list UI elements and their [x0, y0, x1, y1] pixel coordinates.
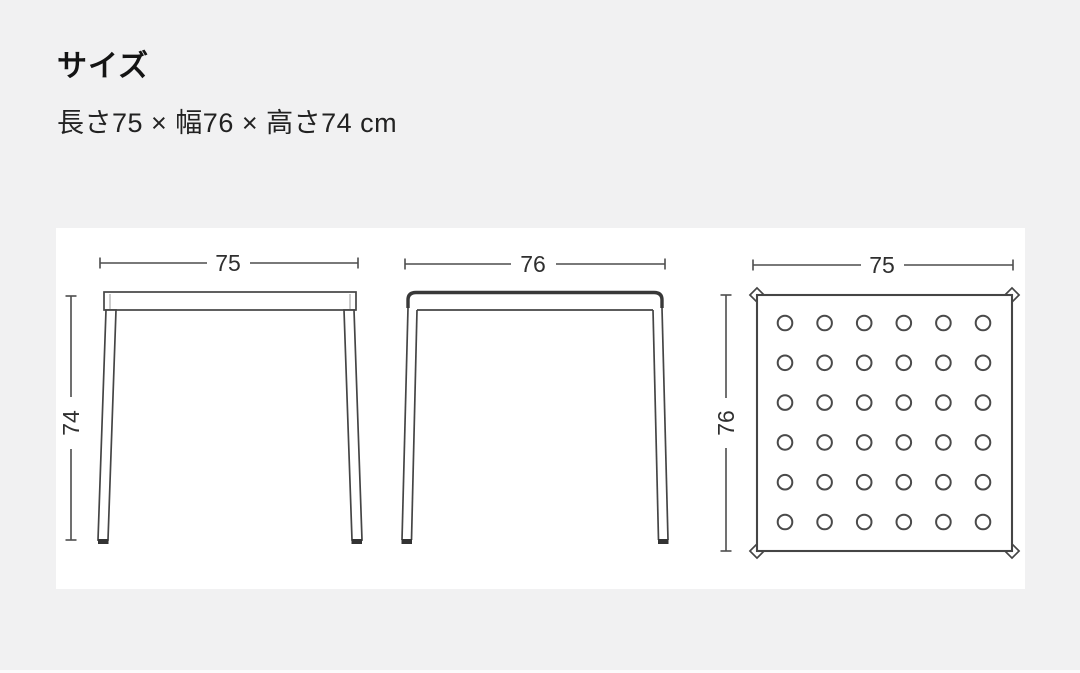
hole — [857, 515, 872, 530]
dimension-diagram: 75 74 — [56, 228, 1025, 589]
hole — [857, 395, 872, 410]
hole — [817, 395, 832, 410]
top-table-drawing — [750, 288, 1019, 558]
hole — [778, 316, 793, 331]
hole — [817, 475, 832, 490]
hole — [897, 475, 912, 490]
hole — [976, 475, 991, 490]
front-table-drawing — [98, 292, 362, 544]
product-size-section: サイズ 長さ75 × 幅76 × 高さ74 cm 75 — [0, 0, 1080, 673]
hole — [778, 435, 793, 450]
top-width-dimension: 75 — [753, 252, 1013, 278]
hole — [857, 435, 872, 450]
hole — [817, 316, 832, 331]
hole — [897, 316, 912, 331]
hole — [897, 395, 912, 410]
top-view: 75 76 — [713, 252, 1019, 558]
hole — [817, 356, 832, 371]
hole — [936, 356, 951, 371]
size-dimensions-text: 長さ75 × 幅76 × 高さ74 cm — [57, 101, 397, 140]
hole — [857, 475, 872, 490]
side-width-label: 76 — [520, 251, 546, 277]
side-table-drawing — [402, 293, 669, 545]
hole — [778, 475, 793, 490]
hole — [817, 515, 832, 530]
hole — [857, 356, 872, 371]
side-view: 76 — [402, 251, 669, 544]
hole — [936, 395, 951, 410]
front-height-dimension: 74 — [58, 296, 84, 540]
hole — [897, 356, 912, 371]
front-width-label: 75 — [215, 250, 241, 276]
front-width-dimension: 75 — [100, 250, 358, 276]
top-depth-label: 76 — [713, 410, 739, 436]
page-title: サイズ — [57, 41, 149, 85]
hole — [936, 435, 951, 450]
hole — [976, 316, 991, 331]
hole — [817, 435, 832, 450]
front-view: 75 74 — [58, 250, 362, 544]
hole — [936, 475, 951, 490]
front-height-label: 74 — [58, 410, 84, 436]
hole — [976, 356, 991, 371]
hole — [897, 435, 912, 450]
hole — [976, 435, 991, 450]
top-width-label: 75 — [869, 252, 895, 278]
hole — [778, 515, 793, 530]
dimension-diagram-panel: 75 74 — [56, 228, 1025, 589]
hole — [976, 395, 991, 410]
hole — [936, 316, 951, 331]
hole — [936, 515, 951, 530]
top-depth-dimension: 76 — [713, 295, 739, 551]
hole — [778, 395, 793, 410]
hole — [976, 515, 991, 530]
hole — [778, 356, 793, 371]
hole — [897, 515, 912, 530]
side-width-dimension: 76 — [405, 251, 665, 277]
hole — [857, 316, 872, 331]
